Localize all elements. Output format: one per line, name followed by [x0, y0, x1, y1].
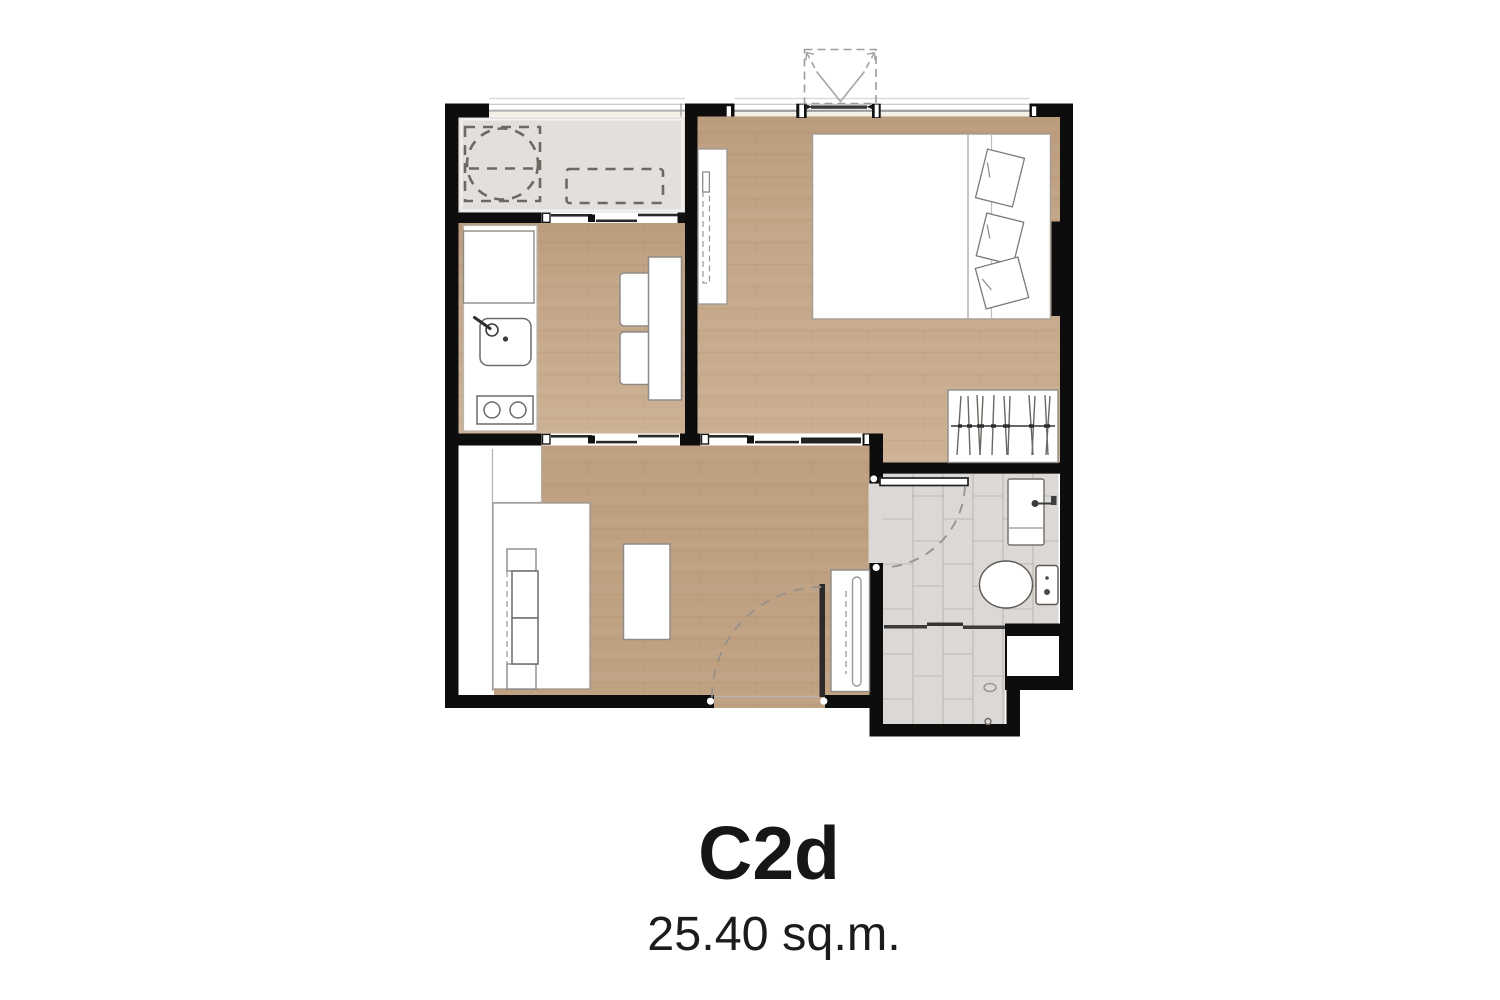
svg-text:25.40 sq.m.: 25.40 sq.m. — [647, 907, 900, 961]
svg-text:C2d: C2d — [698, 811, 840, 895]
